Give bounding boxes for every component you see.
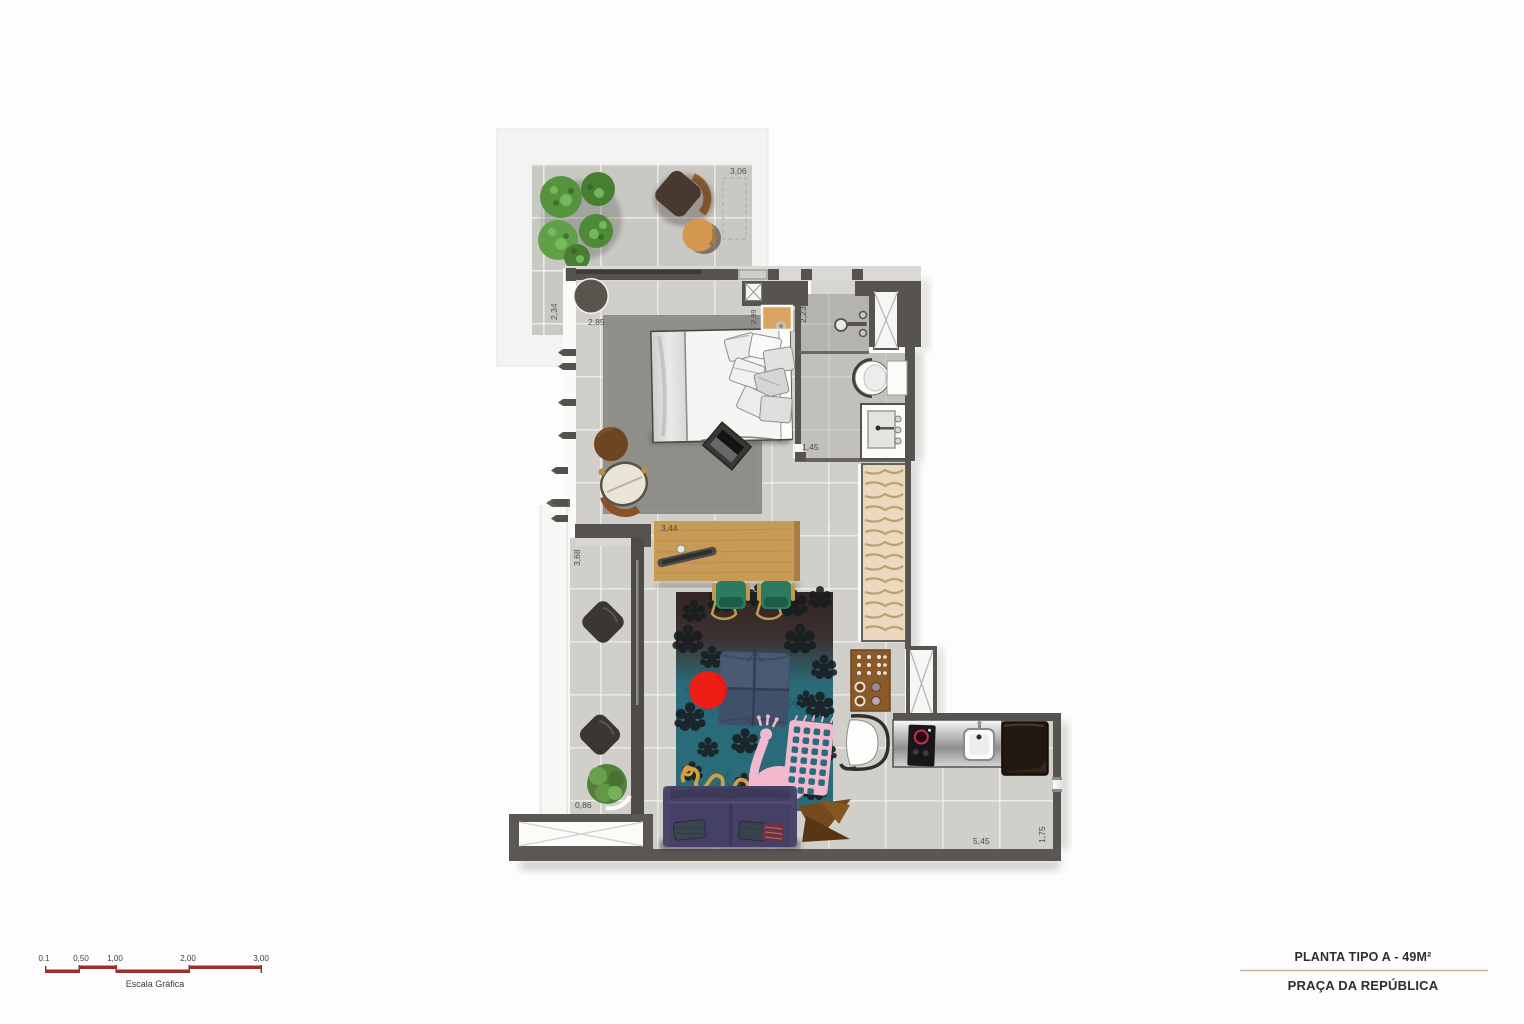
svg-text:0,50: 0,50 [73,954,89,963]
svg-text:PLANTA TIPO A - 49M²: PLANTA TIPO A - 49M² [1294,950,1431,964]
svg-text:PRAÇA DA REPÚBLICA: PRAÇA DA REPÚBLICA [1288,978,1439,993]
svg-text:3,44: 3,44 [661,523,678,533]
svg-text:1,00: 1,00 [107,954,123,963]
svg-text:2,99: 2,99 [749,309,758,324]
svg-text:1,45: 1,45 [802,442,819,452]
svg-text:3,06: 3,06 [730,166,747,176]
svg-text:3,68: 3,68 [572,549,582,566]
svg-text:5,45: 5,45 [973,836,990,846]
svg-text:2,34: 2,34 [549,303,559,320]
svg-text:2,00: 2,00 [180,954,196,963]
svg-text:3,00: 3,00 [253,954,269,963]
svg-text:Escala Gráfica: Escala Gráfica [126,979,185,989]
svg-text:1,75: 1,75 [1037,826,1047,843]
svg-text:2,23: 2,23 [798,306,808,323]
svg-text:2,85: 2,85 [588,317,605,327]
svg-text:0.1: 0.1 [38,954,50,963]
svg-text:0,86: 0,86 [575,800,592,810]
